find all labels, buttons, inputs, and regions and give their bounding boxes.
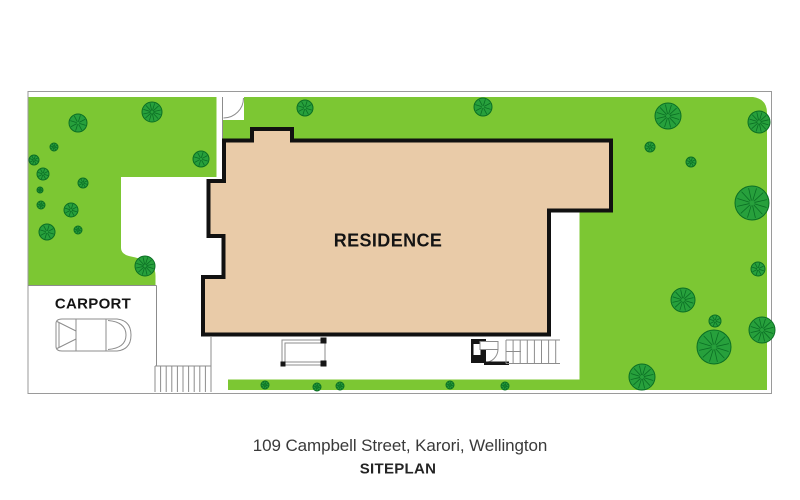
tree (749, 317, 775, 343)
siteplan-page: RESIDENCE CARPORT 109 Campbell Street, K… (0, 0, 800, 500)
entry-stairs (506, 340, 560, 364)
carport-stairs (155, 366, 211, 392)
deck (281, 338, 327, 367)
entry-door (471, 339, 509, 365)
tree (29, 155, 39, 165)
tree (74, 226, 82, 234)
tree (446, 381, 454, 389)
tree (629, 364, 655, 390)
tree (313, 383, 321, 391)
tree (655, 103, 681, 129)
tree (686, 157, 696, 167)
tree (501, 382, 509, 390)
tree (261, 381, 269, 389)
car-icon (56, 319, 131, 351)
address-label: 109 Campbell Street, Karori, Wellington (253, 436, 547, 456)
tree (135, 256, 155, 276)
tree (697, 330, 731, 364)
tree (671, 288, 695, 312)
carport-label: CARPORT (55, 296, 131, 313)
tree (709, 315, 721, 327)
tree (336, 382, 344, 390)
tree (50, 143, 58, 151)
tree (78, 178, 88, 188)
plan-type-label: SITEPLAN (360, 461, 437, 478)
grass-area-left (28, 97, 217, 285)
tree (735, 186, 769, 220)
tree (297, 100, 313, 116)
tree (69, 114, 87, 132)
tree (39, 224, 55, 240)
tree (193, 151, 209, 167)
tree (748, 111, 770, 133)
tree (37, 168, 49, 180)
tree (645, 142, 655, 152)
tree (37, 187, 43, 193)
tree (142, 102, 162, 122)
residence-label: RESIDENCE (334, 231, 443, 252)
tree (64, 203, 78, 217)
tree (37, 201, 45, 209)
tree (751, 262, 765, 276)
tree (474, 98, 492, 116)
